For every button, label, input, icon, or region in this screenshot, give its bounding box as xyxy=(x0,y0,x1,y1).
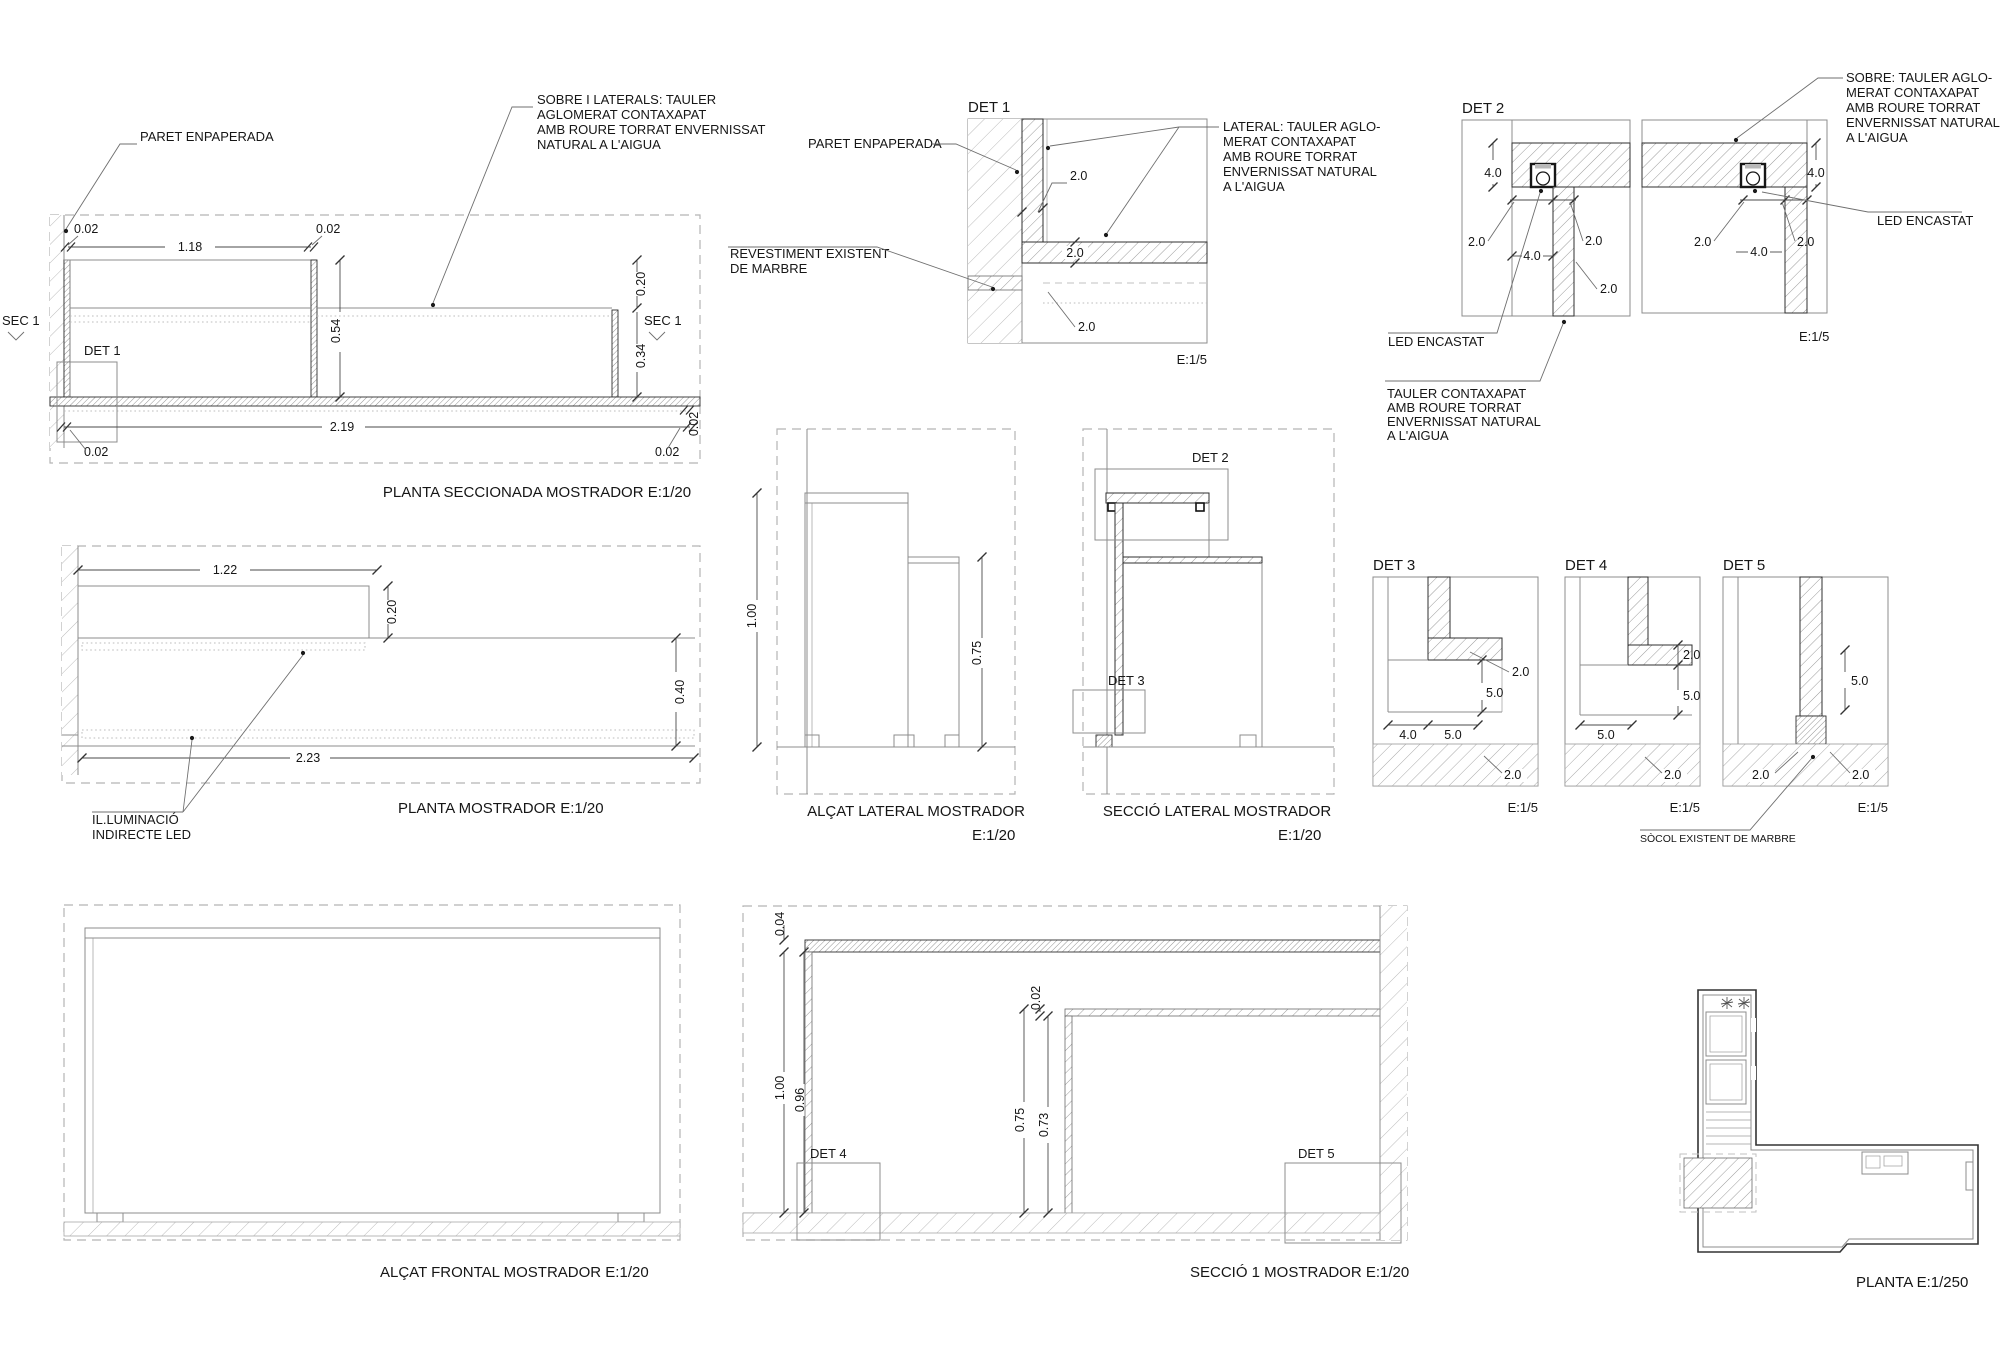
svg-text:0.96: 0.96 xyxy=(793,1088,807,1112)
counter-elevation-linework xyxy=(777,429,1015,794)
det2-title: DET 2 xyxy=(1462,100,1504,117)
panel-seccio-1: 0.04 1.00 0.96 0.02 0.75 0.73 DET 4 xyxy=(743,906,1409,1281)
svg-text:A L'AIGUA: A L'AIGUA xyxy=(1223,179,1285,194)
svg-text:1.00: 1.00 xyxy=(745,604,759,628)
dim-002-bottom-left: 0.02 xyxy=(70,430,108,459)
svg-text:4.0: 4.0 xyxy=(1807,166,1824,180)
svg-text:LATERAL: TAULER AGLO-: LATERAL: TAULER AGLO- xyxy=(1223,119,1381,134)
det1-title: DET 1 xyxy=(968,99,1010,116)
svg-text:SÒCOL EXISTENT DE MARBRE: SÒCOL EXISTENT DE MARBRE xyxy=(1640,832,1796,845)
svg-text:SOBRE I LATERALS: TAULER: SOBRE I LATERALS: TAULER xyxy=(537,92,716,107)
svg-text:2.0: 2.0 xyxy=(1797,235,1814,249)
dim-1-00: 1.00 xyxy=(773,952,789,1218)
det2-sobre-callout: SOBRE: TAULER AGLO- MERAT CONTAXAPAT AMB… xyxy=(1734,70,2000,145)
counter-plan-linework xyxy=(62,586,695,746)
counter-section-linework xyxy=(1083,429,1334,794)
section-marker-right: SEC 1 xyxy=(644,313,682,340)
svg-text:2.0: 2.0 xyxy=(1752,768,1769,782)
mostrador-zone-hatch xyxy=(1684,1158,1752,1208)
svg-text:5.0: 5.0 xyxy=(1486,686,1503,700)
counter-section-linework xyxy=(743,906,1407,1240)
svg-text:REVESTIMENT EXISTENT: REVESTIMENT EXISTENT xyxy=(730,246,889,261)
panel-seccio-lateral: DET 2 DET 3 SECCIÓ LATERAL MOSTRADOR E:1… xyxy=(1073,429,1334,844)
svg-text:AMB ROURE TORRAT ENVERNISSAT: AMB ROURE TORRAT ENVERNISSAT xyxy=(537,122,766,137)
svg-text:0.02: 0.02 xyxy=(74,222,98,236)
svg-text:ENVERNISSAT NATURAL: ENVERNISSAT NATURAL xyxy=(1387,414,1541,429)
det2-left-box: 4.0 2.0 4.0 2.0 2.0 xyxy=(1462,120,1630,316)
dim-2-23: 2.23 xyxy=(78,751,699,765)
panel-boundary xyxy=(64,905,680,1240)
cad-drawing: DET 1 1.18 0.02 0.02 0.54 0.20 0.34 xyxy=(0,0,2000,1370)
svg-text:AGLOMERAT CONTAXAPAT: AGLOMERAT CONTAXAPAT xyxy=(537,107,706,122)
svg-text:5.0: 5.0 xyxy=(1683,689,1700,703)
det1-scale: E:1/5 xyxy=(1177,352,1207,367)
det1-marbre-callout: REVESTIMENT EXISTENT DE MARBRE xyxy=(728,246,995,291)
svg-text:4.0: 4.0 xyxy=(1750,245,1767,259)
svg-text:AMB ROURE TORRAT: AMB ROURE TORRAT xyxy=(1846,100,1980,115)
svg-text:SOBRE: TAULER AGLO-: SOBRE: TAULER AGLO- xyxy=(1846,70,1992,85)
svg-text:0.75: 0.75 xyxy=(970,641,984,665)
svg-text:0.02: 0.02 xyxy=(655,445,679,459)
det4-scale: E:1/5 xyxy=(1670,800,1700,815)
svg-text:4.0: 4.0 xyxy=(1484,166,1501,180)
panel-det4: DET 4 2.0 5.0 5.0 2.0 E:1/5 xyxy=(1565,557,1700,815)
panel-det3: DET 3 2.0 5.0 4.0 5.0 2.0 E:1/5 xyxy=(1373,557,1538,815)
det5-indicator-label: DET 5 xyxy=(1298,1146,1335,1161)
det1-indicator-label: DET 1 xyxy=(84,343,121,358)
counter-front-linework xyxy=(64,928,680,1236)
svg-text:MERAT CONTAXAPAT: MERAT CONTAXAPAT xyxy=(1846,85,1979,100)
svg-text:5.0: 5.0 xyxy=(1597,728,1614,742)
panel-caption: SECCIÓ LATERAL MOSTRADOR xyxy=(1103,803,1332,820)
det2-scale: E:1/5 xyxy=(1799,329,1829,344)
det2-led-callout-left: LED ENCASTAT xyxy=(1388,193,1540,349)
panel-caption: SECCIÓ 1 MOSTRADOR E:1/20 xyxy=(1190,1264,1409,1281)
svg-text:A L'AIGUA: A L'AIGUA xyxy=(1387,428,1449,443)
panel-caption: PLANTA MOSTRADOR E:1/20 xyxy=(398,800,604,817)
svg-text:1.00: 1.00 xyxy=(773,1076,787,1100)
svg-text:DE MARBRE: DE MARBRE xyxy=(730,261,808,276)
panel-planta-250: PLANTA E:1/250 xyxy=(1680,990,1978,1291)
dim-1-00: 1.00 xyxy=(745,489,762,752)
svg-text:0.20: 0.20 xyxy=(634,272,648,296)
det1-dim-20-c: 2.0 xyxy=(1048,292,1095,334)
svg-text:SEC 1: SEC 1 xyxy=(644,313,682,328)
svg-text:2.0: 2.0 xyxy=(1512,665,1529,679)
panel-det1: DET 1 2.0 2.0 2.0 PARET ENPAPERADA xyxy=(728,99,1381,367)
svg-text:0.02: 0.02 xyxy=(316,222,340,236)
panel-alcat-lateral: 1.00 0.75 ALÇAT LATERAL MOSTRADOR E:1/20 xyxy=(745,429,1025,844)
svg-text:MERAT CONTAXAPAT: MERAT CONTAXAPAT xyxy=(1223,134,1356,149)
svg-text:2.0: 2.0 xyxy=(1585,234,1602,248)
svg-text:4.0: 4.0 xyxy=(1399,728,1416,742)
panel-det2: DET 2 4.0 2.0 4.0 2.0 2.0 xyxy=(1385,70,2000,443)
dim-0-20-right: 0.20 xyxy=(633,256,649,313)
panel-caption: PLANTA E:1/250 xyxy=(1856,1274,1968,1291)
svg-text:2.23: 2.23 xyxy=(296,751,320,765)
panel-planta-mostrador: 1.22 0.20 0.40 2.23 IL.LUMINACIÓ INDIREC… xyxy=(62,546,700,842)
dim-1-18: 1.18 xyxy=(61,240,318,254)
svg-text:0.20: 0.20 xyxy=(385,600,399,624)
dim-0-75: 0.75 xyxy=(970,553,987,752)
svg-text:0.04: 0.04 xyxy=(773,912,787,936)
svg-text:PARET ENPAPERADA: PARET ENPAPERADA xyxy=(140,129,274,144)
panel-boundary xyxy=(777,429,1015,794)
svg-text:2.0: 2.0 xyxy=(1078,320,1095,334)
svg-text:1.18: 1.18 xyxy=(178,240,202,254)
floor-plan-linework xyxy=(1680,990,1978,1252)
det5-scale: E:1/5 xyxy=(1858,800,1888,815)
det2-indicator-label: DET 2 xyxy=(1192,450,1229,465)
counter-plan-linework xyxy=(50,260,700,411)
svg-text:NATURAL A L'AIGUA: NATURAL A L'AIGUA xyxy=(537,137,661,152)
det3-scale: E:1/5 xyxy=(1508,800,1538,815)
svg-text:AMB ROURE TORRAT: AMB ROURE TORRAT xyxy=(1223,149,1357,164)
panel-scale: E:1/20 xyxy=(972,827,1015,844)
panel-boundary xyxy=(743,906,1407,1240)
svg-text:2.0: 2.0 xyxy=(1066,246,1083,260)
svg-text:2.0: 2.0 xyxy=(1683,648,1700,662)
dim-0-04: 0.04 xyxy=(773,912,789,957)
panel-boundary xyxy=(50,215,700,463)
svg-text:ENVERNISSAT NATURAL: ENVERNISSAT NATURAL xyxy=(1223,164,1377,179)
svg-text:2.0: 2.0 xyxy=(1600,282,1617,296)
svg-text:2.0: 2.0 xyxy=(1504,768,1521,782)
svg-text:LED ENCASTAT: LED ENCASTAT xyxy=(1388,334,1484,349)
dim-002-right-bottom: 0.02 xyxy=(655,428,680,459)
det2-right-box: 4.0 2.0 4.0 2.0 xyxy=(1642,120,1827,313)
svg-text:2.0: 2.0 xyxy=(1468,235,1485,249)
dim-002-top-left: 0.02 xyxy=(68,222,98,245)
dim-2-19: 2.19 xyxy=(57,420,697,434)
dim-0-02: 0.02 xyxy=(1029,986,1045,1021)
det3-linework xyxy=(1373,577,1538,786)
led-fixture-icon xyxy=(1531,164,1555,187)
svg-text:2.19: 2.19 xyxy=(330,420,354,434)
panel-caption: ALÇAT LATERAL MOSTRADOR xyxy=(807,803,1025,820)
panel-planta-seccionada: DET 1 1.18 0.02 0.02 0.54 0.20 0.34 xyxy=(2,92,766,501)
svg-text:INDIRECTE LED: INDIRECTE LED xyxy=(92,827,191,842)
led-fixture-icon xyxy=(1741,164,1765,187)
det4-linework xyxy=(1565,577,1700,786)
svg-text:0.73: 0.73 xyxy=(1037,1113,1051,1137)
dim-0-75: 0.75 xyxy=(1013,1005,1029,1218)
drawing-sheet: DET 1 1.18 0.02 0.02 0.54 0.20 0.34 xyxy=(0,0,2000,1370)
svg-text:2.0: 2.0 xyxy=(1664,768,1681,782)
svg-text:1.22: 1.22 xyxy=(213,563,237,577)
dim-0-73: 0.73 xyxy=(1037,1012,1053,1218)
svg-text:SEC 1: SEC 1 xyxy=(2,313,40,328)
panel-boundary xyxy=(62,546,700,783)
det1-lateral-callout: LATERAL: TAULER AGLO- MERAT CONTAXAPAT A… xyxy=(1046,119,1381,237)
svg-text:AMB ROURE TORRAT: AMB ROURE TORRAT xyxy=(1387,400,1521,415)
svg-text:2.0: 2.0 xyxy=(1694,235,1711,249)
det4-indicator-label: DET 4 xyxy=(810,1146,847,1161)
svg-text:0.02: 0.02 xyxy=(687,412,701,436)
svg-text:ENVERNISSAT NATURAL: ENVERNISSAT NATURAL xyxy=(1846,115,2000,130)
det3-indicator-box xyxy=(1073,690,1145,733)
svg-text:IL.LUMINACIÓ: IL.LUMINACIÓ xyxy=(92,812,179,827)
svg-text:0.75: 0.75 xyxy=(1013,1108,1027,1132)
svg-text:0.02: 0.02 xyxy=(84,445,108,459)
svg-text:0.54: 0.54 xyxy=(329,319,343,343)
dim-1-22: 1.22 xyxy=(74,563,382,577)
panel-scale: E:1/20 xyxy=(1278,827,1321,844)
panel-caption: PLANTA SECCIONADA MOSTRADOR E:1/20 xyxy=(383,484,691,501)
dim-0-40: 0.40 xyxy=(672,634,688,751)
paret-enpaperada-callout: PARET ENPAPERADA xyxy=(64,129,274,233)
svg-text:5.0: 5.0 xyxy=(1851,674,1868,688)
sobre-laterals-callout: SOBRE I LATERALS: TAULER AGLOMERAT CONTA… xyxy=(431,92,766,307)
dim-002-top-right: 0.02 xyxy=(312,222,340,245)
svg-text:PARET ENPAPERADA: PARET ENPAPERADA xyxy=(808,136,942,151)
wall-hatch xyxy=(62,546,78,775)
det3-indicator-label: DET 3 xyxy=(1108,673,1145,688)
dim-0-54: 0.54 xyxy=(329,256,345,402)
svg-text:4.0: 4.0 xyxy=(1523,249,1540,263)
panel-caption: ALÇAT FRONTAL MOSTRADOR E:1/20 xyxy=(380,1264,649,1281)
svg-text:2.0: 2.0 xyxy=(1852,768,1869,782)
det5-title: DET 5 xyxy=(1723,557,1765,574)
det1-linework xyxy=(968,119,1207,343)
det4-title: DET 4 xyxy=(1565,557,1607,574)
svg-text:2.0: 2.0 xyxy=(1070,169,1087,183)
panel-alcat-frontal: ALÇAT FRONTAL MOSTRADOR E:1/20 xyxy=(64,905,680,1281)
svg-text:A L'AIGUA: A L'AIGUA xyxy=(1846,130,1908,145)
det3-title: DET 3 xyxy=(1373,557,1415,574)
section-marker-left: SEC 1 xyxy=(2,313,40,340)
svg-text:LED ENCASTAT: LED ENCASTAT xyxy=(1877,213,1973,228)
svg-text:5.0: 5.0 xyxy=(1444,728,1461,742)
svg-text:0.02: 0.02 xyxy=(1029,986,1043,1010)
svg-text:TAULER CONTAXAPAT: TAULER CONTAXAPAT xyxy=(1387,386,1526,401)
dim-0-20: 0.20 xyxy=(384,582,400,643)
svg-text:0.40: 0.40 xyxy=(673,680,687,704)
svg-text:0.34: 0.34 xyxy=(634,344,648,368)
